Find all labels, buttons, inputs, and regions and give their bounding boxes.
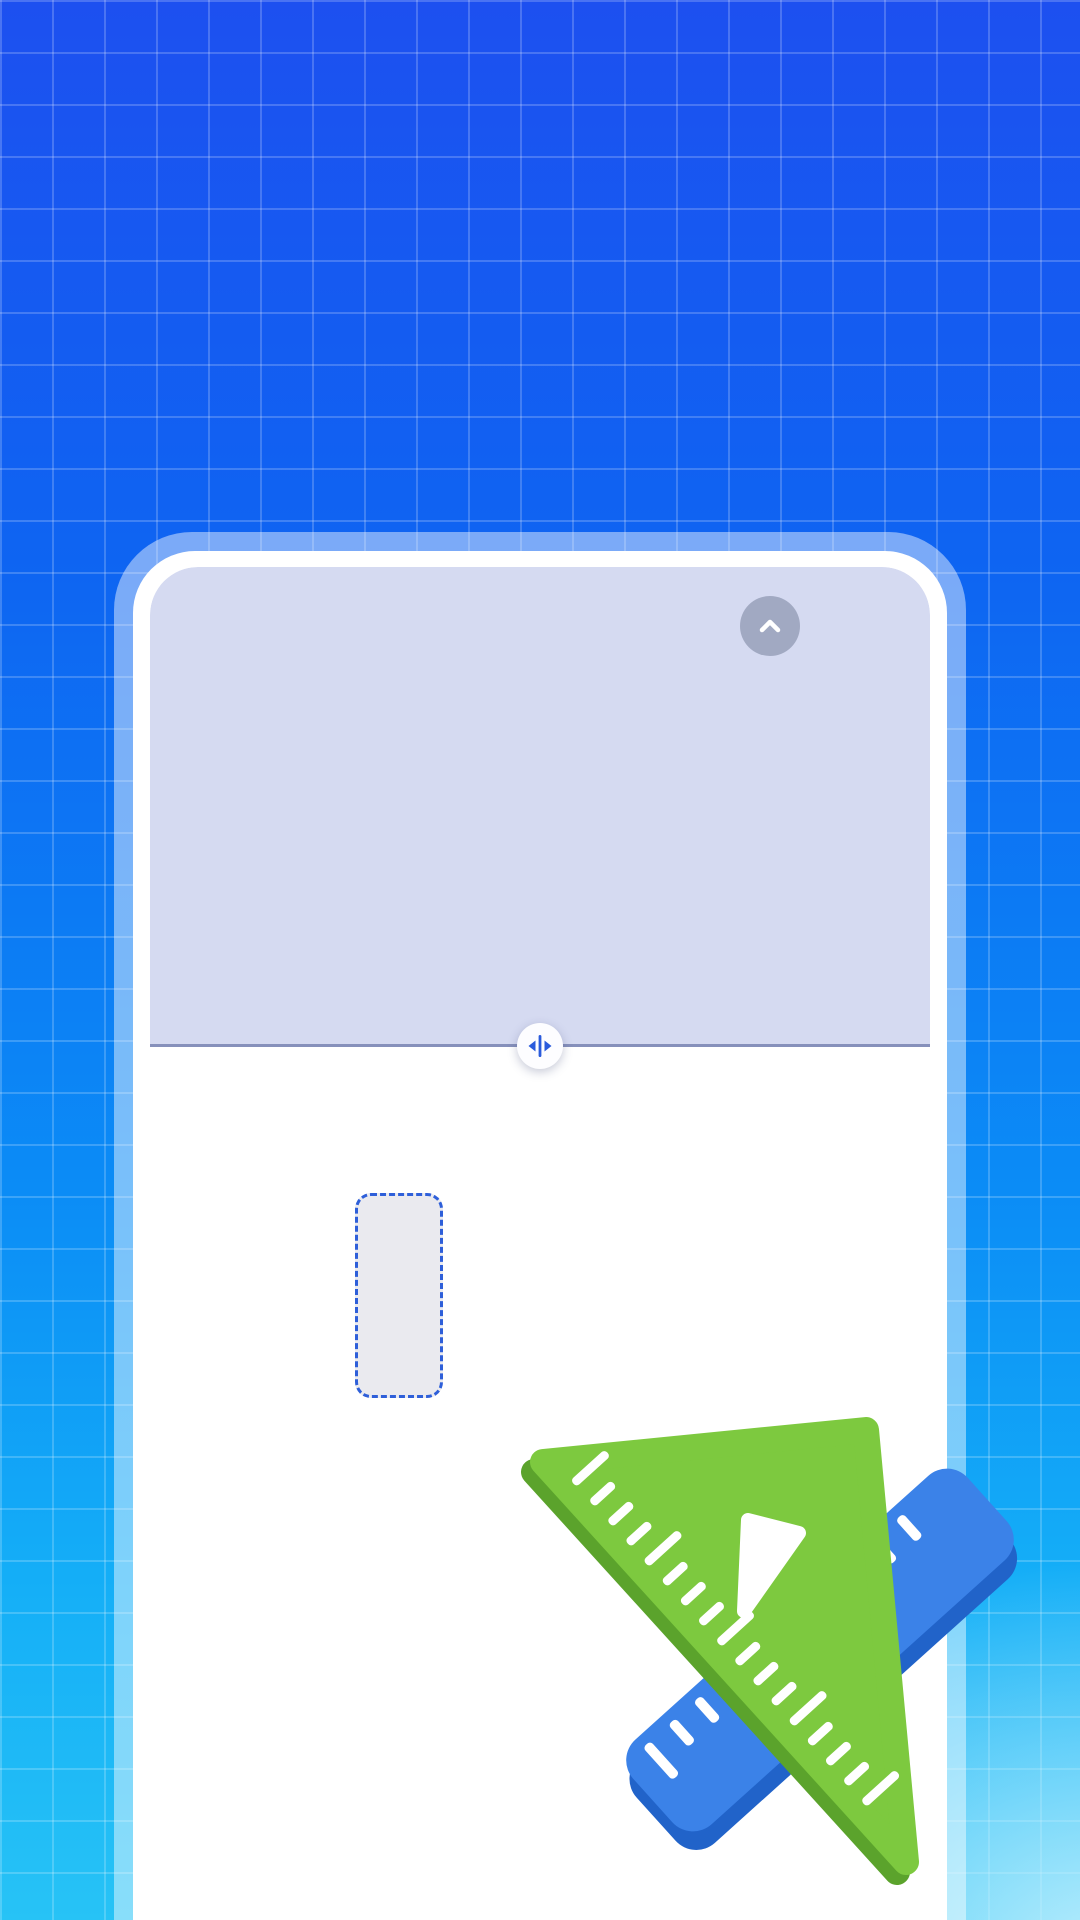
set-square-and-ruler-illustration bbox=[505, 1408, 1050, 1920]
measured-region bbox=[150, 567, 930, 1046]
chevron-up-icon bbox=[754, 610, 786, 642]
measurement-label bbox=[355, 1193, 443, 1398]
collapse-button[interactable] bbox=[740, 596, 800, 656]
divider-drag-handle[interactable] bbox=[517, 1023, 563, 1069]
move-horizontal-icon bbox=[526, 1032, 554, 1060]
